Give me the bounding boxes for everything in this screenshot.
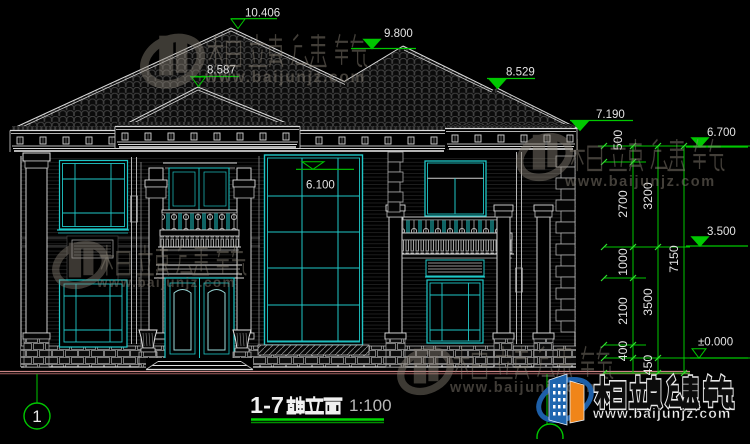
svg-text:8.529: 8.529: [506, 67, 535, 79]
svg-text:2700: 2700: [616, 190, 630, 218]
svg-text:450: 450: [641, 355, 655, 376]
svg-text:1000: 1000: [616, 248, 630, 276]
svg-text:www.baijunjz.com: www.baijunjz.com: [204, 69, 366, 86]
svg-text:www.baijunjz.com: www.baijunjz.com: [96, 275, 236, 290]
svg-text:7.190: 7.190: [596, 109, 625, 121]
svg-text:1-7: 1-7: [250, 392, 284, 418]
svg-text:10.406: 10.406: [245, 8, 280, 20]
svg-text:3500: 3500: [641, 288, 655, 316]
svg-text:6.100: 6.100: [306, 180, 335, 192]
svg-text:1: 1: [32, 407, 41, 426]
svg-text:www.baijunjz.com: www.baijunjz.com: [564, 174, 716, 190]
svg-text:1:100: 1:100: [349, 396, 392, 415]
svg-text:9.800: 9.800: [384, 28, 413, 40]
svg-text:2100: 2100: [616, 297, 630, 325]
svg-text:7150: 7150: [667, 245, 681, 273]
svg-text:www.baijunjz.com: www.baijunjz.com: [592, 405, 731, 421]
svg-text:6.700: 6.700: [707, 127, 736, 139]
svg-text:400: 400: [616, 341, 630, 362]
svg-text:3.500: 3.500: [707, 226, 736, 238]
svg-text:±0.000: ±0.000: [698, 337, 733, 349]
